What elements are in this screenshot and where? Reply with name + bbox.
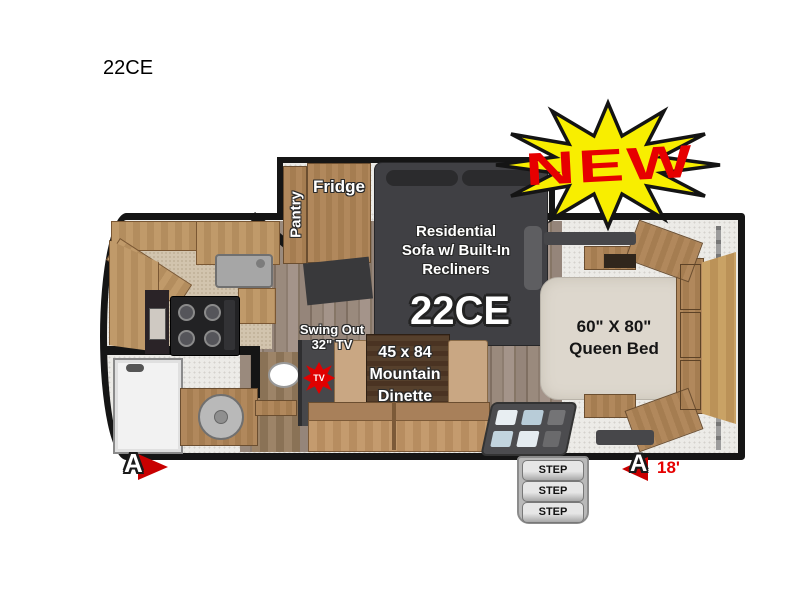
tv-label-line1: Swing Out	[300, 322, 364, 337]
mat-pane	[490, 431, 513, 447]
new-burst: NEW	[490, 95, 730, 237]
step-2: STEP	[522, 481, 584, 502]
entry-mat	[480, 402, 577, 456]
step-1: STEP	[522, 460, 584, 481]
marker-a-left-letter: A	[124, 448, 143, 479]
wardrobe-door	[680, 360, 701, 410]
burner-icon	[178, 330, 195, 347]
dinette-label: 45 x 84 Mountain Dinette	[344, 342, 466, 408]
pantry-label: Pantry	[288, 175, 305, 255]
dinette-label-line3: Dinette	[378, 386, 432, 408]
model-label: 22CE	[376, 288, 544, 334]
mat-pane	[547, 410, 566, 425]
bed-side-panel	[702, 252, 736, 424]
floorplan-canvas: 22CE Swing Out 32" TV TV Pantry Fridge	[0, 0, 800, 600]
burner-icon	[204, 330, 221, 347]
bed-label: 60" X 80" Queen Bed	[552, 316, 676, 360]
dinette-label-line2: Mountain	[369, 364, 440, 386]
burner-icon	[178, 304, 195, 321]
kitchen-counter-end	[238, 288, 276, 324]
counter-under-fridge	[303, 257, 373, 306]
bed-label-line2: Queen Bed	[569, 338, 659, 360]
sofa-label-line1: Residential	[416, 222, 496, 241]
fridge-label: Fridge	[307, 177, 371, 197]
shower-head-icon	[126, 364, 144, 372]
wardrobe-door	[680, 312, 701, 358]
sofa-cushion	[386, 170, 458, 186]
mat-pane	[542, 431, 561, 447]
bath-bench	[255, 400, 297, 416]
wardrobe-door	[680, 264, 701, 310]
bed-label-line1: 60" X 80"	[577, 316, 652, 338]
page-title: 22CE	[103, 57, 153, 80]
new-burst-label: NEW	[524, 135, 696, 196]
shower	[113, 358, 183, 454]
stove-knobs	[224, 300, 235, 350]
mat-pane	[516, 431, 539, 447]
mat-pane	[495, 410, 518, 425]
nightstand-top-shelf	[604, 254, 636, 268]
step-3: STEP	[522, 502, 584, 523]
toilet-lid-icon	[214, 410, 228, 424]
tv-badge-label: TV	[313, 373, 325, 383]
mat-pane	[521, 410, 544, 425]
dinette-bench-seat	[308, 420, 490, 452]
bench-divider	[392, 402, 396, 450]
sofa-label-line2: Sofa w/ Built-In	[402, 241, 510, 260]
oven-window	[149, 308, 166, 340]
faucet-icon	[256, 259, 265, 268]
kitchen-sink	[215, 254, 273, 288]
tv-badge: TV	[303, 362, 335, 394]
burner-icon	[204, 304, 221, 321]
bedroom-shelf-bottom	[596, 430, 654, 445]
entry-steps: STEP STEP STEP	[517, 456, 589, 524]
bath-sink	[268, 362, 300, 388]
marker-a-right-letter: A	[630, 450, 647, 478]
dinette-label-line1: 45 x 84	[378, 342, 431, 364]
sofa-label-line3: Recliners	[422, 260, 490, 279]
length-label: 18'	[657, 458, 680, 478]
